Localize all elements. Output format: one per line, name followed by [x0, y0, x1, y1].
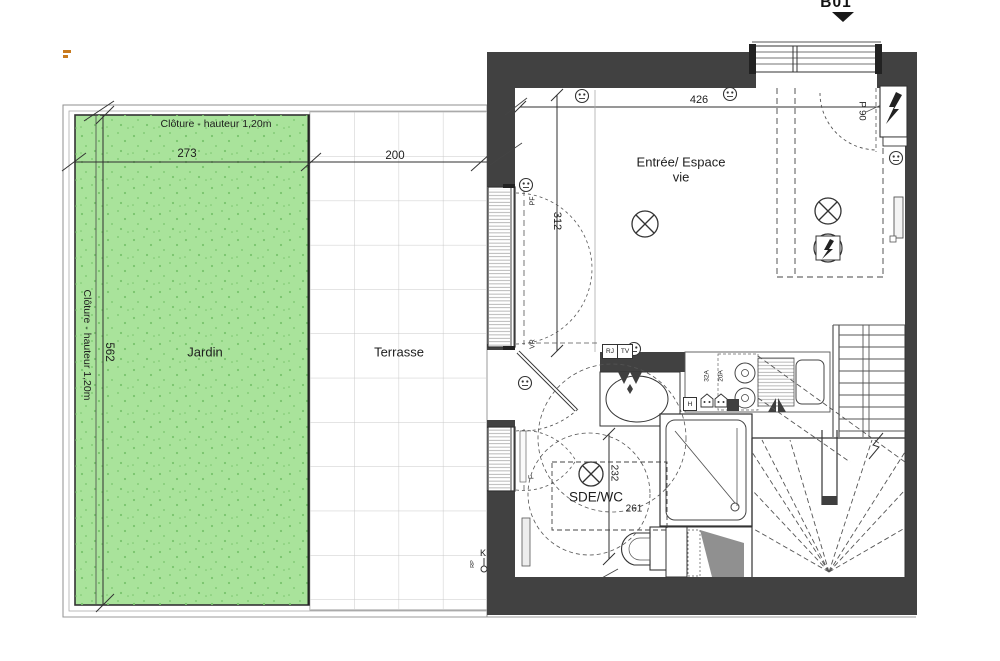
outlet-icons: [519, 88, 903, 397]
window-f-label: F: [529, 475, 536, 479]
socket-20a-label: 20A: [718, 370, 725, 382]
electrical-panel-icon: [880, 86, 907, 146]
unit-marker-label: B01: [820, 0, 851, 12]
dim-garden-width: 273: [177, 148, 196, 160]
garden-label: Jardin: [187, 345, 222, 360]
floor-plan-page: B01 Clôture - hauteur 1,20m Clôture - ha…: [0, 0, 1000, 661]
tv-label: TV: [621, 348, 629, 355]
left-window-lower: [488, 427, 576, 491]
floor-plan-canvas: [0, 0, 1000, 661]
kitchen-counter: [685, 352, 830, 412]
building-walls: [487, 52, 917, 615]
radiator-living: [890, 197, 903, 242]
fence-label-top: Clôture - hauteur 1,20m: [161, 118, 272, 130]
plan-mark: [63, 50, 71, 58]
dim-garden-height: 562: [103, 342, 115, 361]
bath-label: SDE/WC: [569, 490, 623, 505]
door-p90-label: P 90: [857, 101, 868, 120]
rj-label: RJ: [606, 348, 614, 355]
power-point-icon: [814, 234, 842, 262]
socket-32a-label: 32A: [704, 370, 711, 382]
h-label: H: [688, 401, 693, 408]
rj-socket-tag: RJ: [602, 344, 618, 359]
dim-room-depth: 312: [551, 212, 563, 230]
entry-door: [518, 352, 578, 431]
radiator-bath: [522, 518, 530, 566]
dim-terrace-width: 200: [385, 150, 404, 162]
tv-socket-tag: TV: [617, 344, 633, 359]
unit-marker-arrow-icon: [832, 12, 854, 22]
terrace-area: [310, 112, 487, 610]
shutter-vr-label: VR: [530, 339, 537, 349]
dim-bath-depth: 232: [609, 465, 620, 482]
dim-room-width: 426: [690, 94, 708, 106]
tap-k-label: K: [480, 548, 486, 558]
shower: [660, 414, 752, 526]
left-window-upper: [488, 184, 592, 350]
understair-storage: [666, 527, 744, 577]
window-pf-label: PF: [530, 197, 537, 206]
fence-label-left: Clôture - hauteur 1,20m: [81, 290, 93, 401]
tap-rp-label: RP: [470, 560, 476, 568]
room-main-label: Entrée/ Espace vie: [631, 155, 731, 186]
top-window: [749, 42, 882, 74]
h-socket-tag: H: [683, 397, 697, 411]
dim-bath-width: 261: [626, 504, 643, 515]
terrace-label: Terrasse: [374, 345, 424, 360]
